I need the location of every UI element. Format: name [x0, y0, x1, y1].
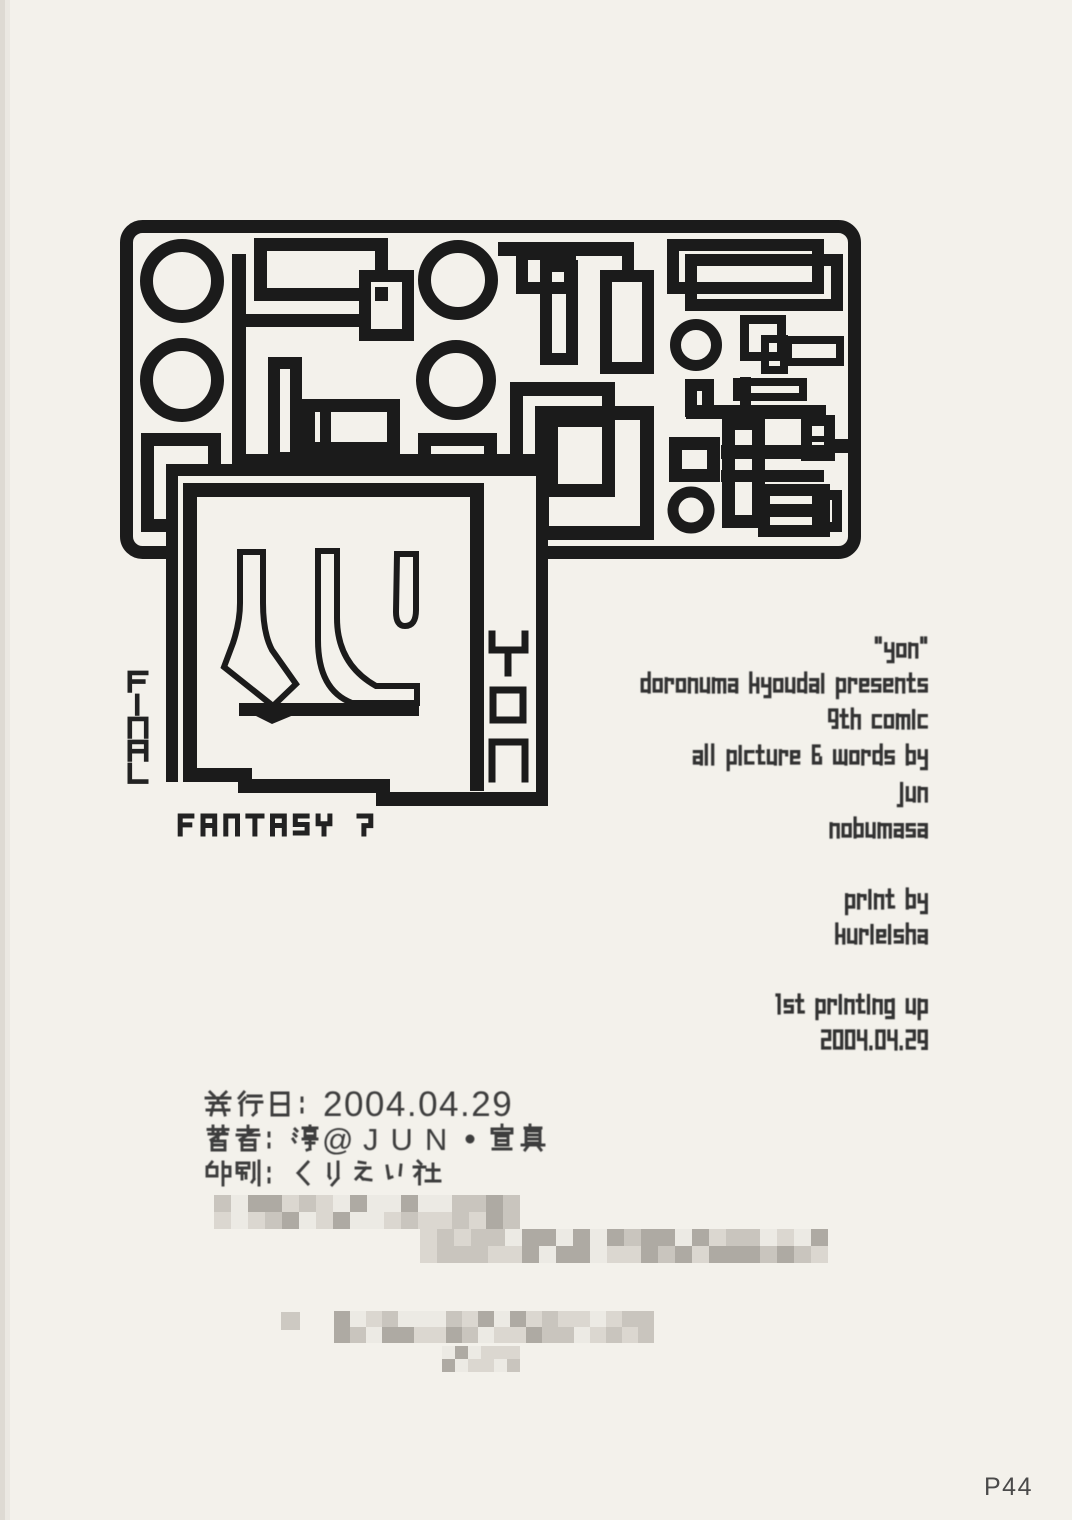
svg-text:P44: P44 — [984, 1473, 1033, 1501]
svg-text:JUN: JUN — [363, 1122, 459, 1157]
svg-text:@: @ — [322, 1122, 353, 1157]
svg-text:2004.04.29: 2004.04.29 — [323, 1085, 513, 1124]
